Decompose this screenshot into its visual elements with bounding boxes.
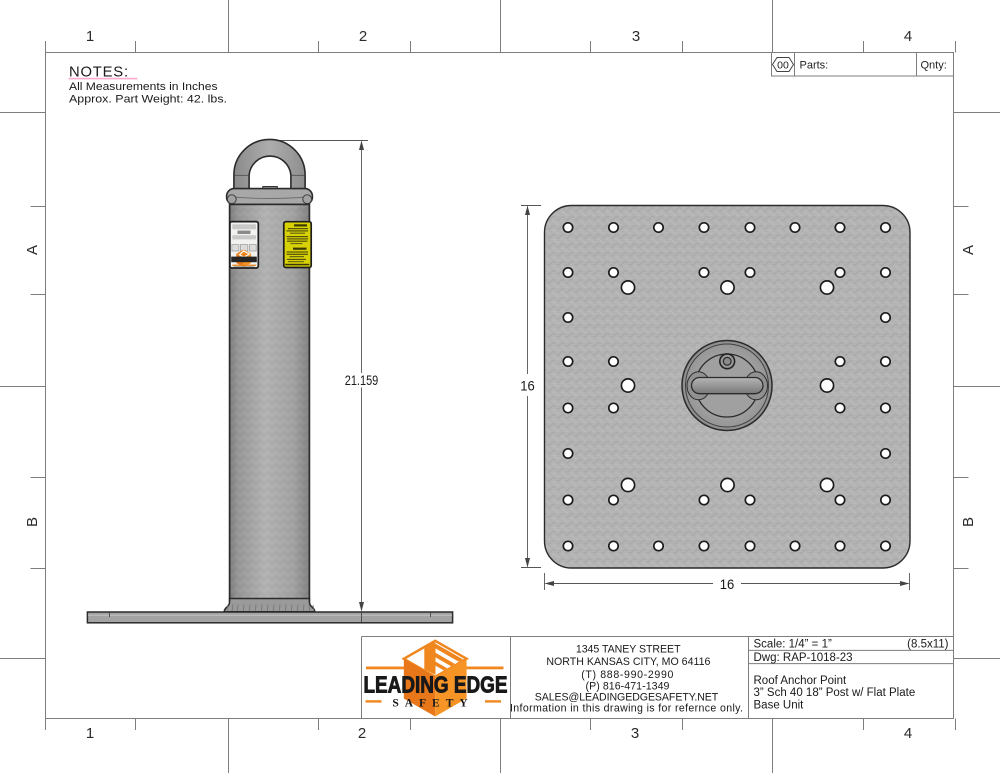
svg-text:LEADING EDGE: LEADING EDGE [364,672,508,698]
svg-text:16: 16 [720,577,735,592]
svg-text:1345 TANEY STREET: 1345 TANEY STREET [576,643,681,655]
svg-text:21.159: 21.159 [345,373,379,388]
svg-text:Parts:: Parts: [800,60,829,72]
svg-text:SALES@LEADINGEDGESAFETY.NET: SALES@LEADINGEDGESAFETY.NET [535,691,719,703]
svg-text:Scale: 1/4” = 1”: Scale: 1/4” = 1” [754,639,832,651]
svg-text:2: 2 [359,28,367,45]
svg-text:2: 2 [358,725,366,742]
svg-text:Information in this drawing is: Information in this drawing is for refer… [510,703,743,715]
svg-text:B: B [960,517,977,527]
svg-text:B: B [24,517,41,527]
svg-text:All Measurements in Inches: All Measurements in Inches [69,81,218,93]
svg-text:00: 00 [777,59,789,71]
svg-text:(8.5x11): (8.5x11) [907,639,949,651]
svg-text:3: 3 [632,28,640,45]
svg-text:(T) 888-990-2990: (T) 888-990-2990 [581,669,673,681]
svg-text:16: 16 [520,378,535,393]
svg-text:4: 4 [904,725,912,742]
svg-text:Dwg: RAP-1018-23: Dwg: RAP-1018-23 [754,652,853,664]
svg-text:Approx. Part Weight: 42. lbs.: Approx. Part Weight: 42. lbs. [69,94,227,106]
svg-text:3” Sch 40 18” Post w/ Flat Pla: 3” Sch 40 18” Post w/ Flat Plate [754,687,916,699]
svg-text:Roof Anchor Point: Roof Anchor Point [754,675,848,687]
svg-text:NORTH KANSAS CITY, MO 64116: NORTH KANSAS CITY, MO 64116 [546,656,710,668]
svg-text:A: A [960,245,977,255]
svg-text:1: 1 [86,725,94,742]
svg-text:3: 3 [631,725,639,742]
svg-text:Base Unit: Base Unit [754,699,805,711]
svg-text:4: 4 [904,28,912,45]
svg-text:Qnty:: Qnty: [921,60,947,72]
svg-text:SAFETY: SAFETY [392,698,473,710]
svg-text:1: 1 [86,28,94,45]
svg-text:A: A [24,245,41,255]
